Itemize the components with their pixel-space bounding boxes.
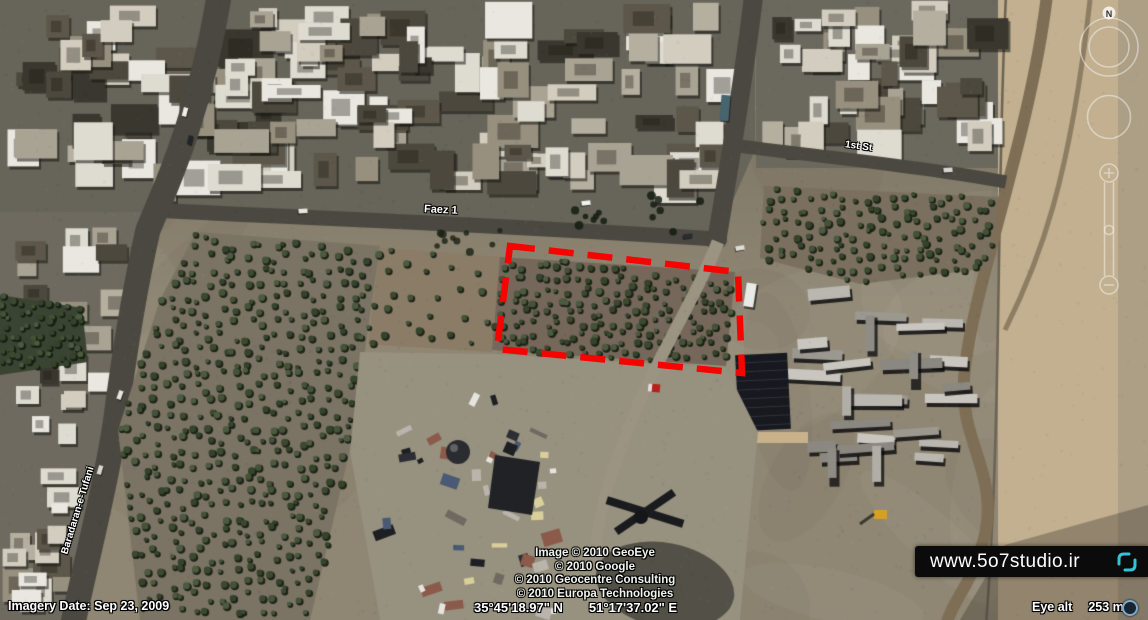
- eye-altitude: Eye alt 253 m: [1032, 600, 1124, 614]
- pointer-coordinates: 35°45'18.97" N 51°17'37.02" E: [474, 600, 677, 615]
- zoom-slider-handle[interactable]: [1105, 226, 1114, 235]
- north-label: N: [1106, 9, 1113, 19]
- copyright-line: © 2010 Google: [445, 561, 745, 575]
- copyright-line: © 2010 Geocentre Consulting: [445, 574, 745, 588]
- longitude-value: 51°17'37.02" E: [589, 600, 677, 615]
- imagery-date-label: Imagery Date: Sep 23, 2009: [8, 599, 169, 613]
- google-earth-viewport: Faez 1 1st St Baradaran-e-Tufani N Image…: [0, 0, 1148, 620]
- compass-ring[interactable]: [1080, 18, 1138, 76]
- copyright-line: Image © 2010 GeoEye: [445, 547, 745, 561]
- nav-controls: N: [1048, 0, 1148, 310]
- street-label-faez: Faez 1: [424, 203, 458, 217]
- zoom-slider[interactable]: [1100, 164, 1118, 294]
- copyright-block: Image © 2010 GeoEye © 2010 Google © 2010…: [445, 547, 745, 601]
- eye-alt-label: Eye alt: [1032, 600, 1072, 614]
- satellite-imagery-canvas[interactable]: [0, 0, 1148, 620]
- watermark-url: www.5o7studio.ir: [915, 551, 1080, 573]
- eye-alt-value: 253 m: [1088, 600, 1123, 614]
- look-joystick[interactable]: [1088, 96, 1131, 139]
- latitude-value: 35°45'18.97" N: [474, 600, 563, 615]
- watermark-bar: www.5o7studio.ir: [915, 546, 1148, 577]
- north-indicator[interactable]: N: [1103, 7, 1116, 20]
- copyright-line: © 2010 Europa Technologies: [445, 588, 745, 602]
- streaming-indicator-icon: [1122, 600, 1138, 616]
- studio-logo-icon: [1115, 550, 1139, 574]
